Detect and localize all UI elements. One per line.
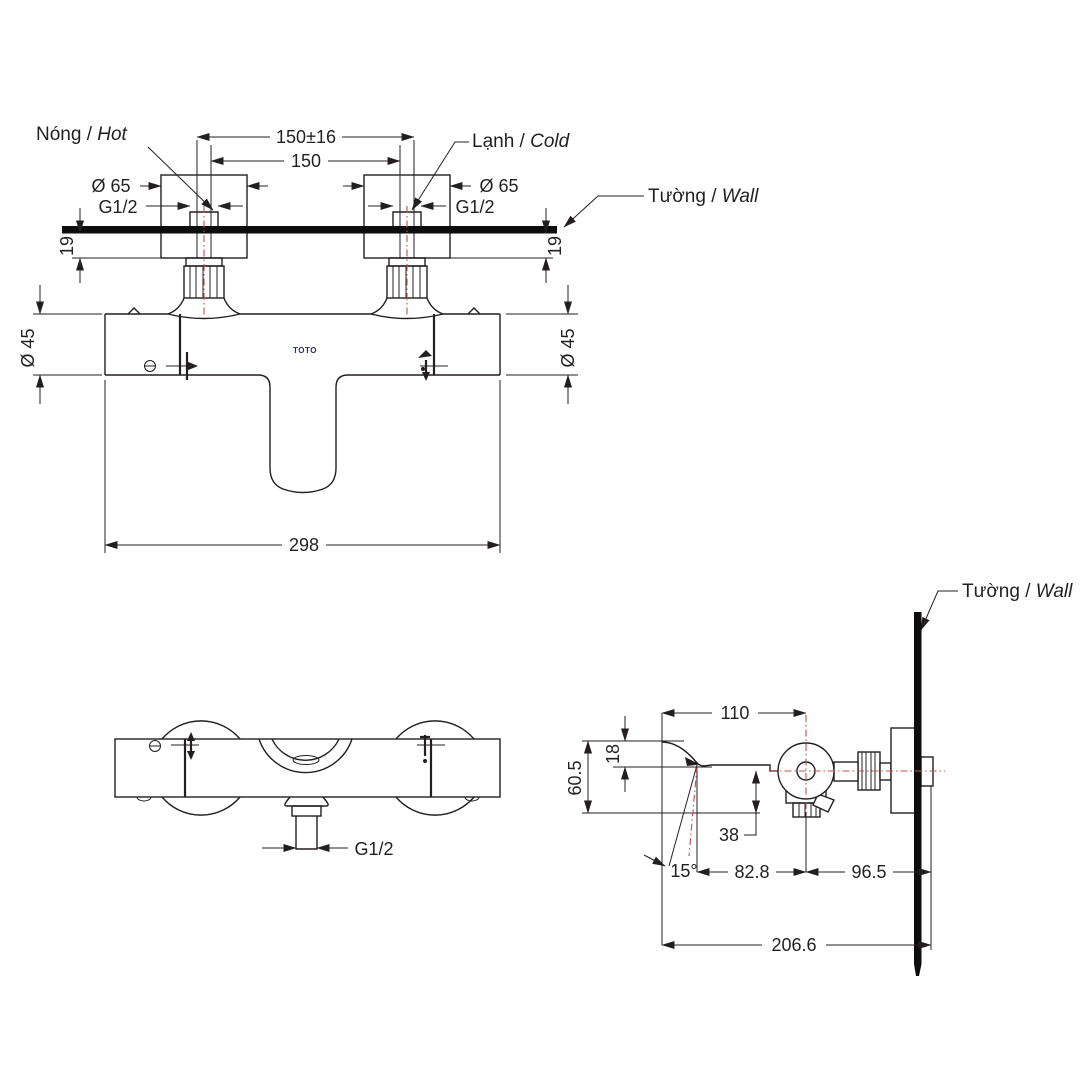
technical-drawing-page: 150±16 150 Ø 65 Ø 65 G1/2 G1/2 Nóng / Ho…	[0, 0, 1090, 1090]
top-view: G1/2	[115, 721, 500, 859]
dim-escutcheon-dia-left: Ø 65	[91, 176, 130, 196]
handle-right-bottom-arc	[396, 797, 474, 815]
dim-overall-depth: 206.6	[771, 935, 816, 955]
temperature-icon-top	[150, 732, 200, 760]
handle-right-top-arc	[396, 721, 474, 739]
dim-escutcheon-dia-right: Ø 65	[479, 176, 518, 196]
wall-label-side: Tường / Wall	[962, 581, 1073, 602]
wall-side-bar	[914, 612, 922, 964]
dim-body-dia-right: Ø 45	[558, 328, 578, 367]
wall-leader-front	[564, 196, 644, 227]
dim-tip-to-center: 82.8	[734, 862, 769, 882]
spout-inner-arc	[272, 739, 339, 760]
mixer-body-top	[115, 739, 500, 797]
front-view: 150±16 150 Ø 65 Ø 65 G1/2 G1/2 Nóng / Ho…	[18, 124, 759, 555]
brand-logo: TOTO	[293, 346, 317, 355]
dim-overall-width: 298	[289, 535, 319, 555]
dim-center-tolerance: 150±16	[276, 127, 336, 147]
side-view: Tường / Wall	[565, 581, 1073, 976]
dim-center-to-wall: 96.5	[851, 862, 886, 882]
dim-spout-angle: 15°	[670, 861, 697, 881]
hot-label: Nóng / Hot	[36, 124, 128, 145]
outlet-top-view	[285, 797, 328, 849]
handle-left-bottom-arc	[162, 797, 240, 815]
wall-section-bar	[62, 226, 557, 234]
wall-label-front: Tường / Wall	[648, 186, 759, 207]
hot-leader-line	[148, 147, 213, 210]
dim-wall-offset-right: 19	[545, 236, 565, 256]
dim-outlet-depth: 38	[719, 825, 739, 845]
dim-spout-drop: 18	[603, 744, 623, 764]
dim-thread-left: G1/2	[98, 197, 137, 217]
wall-leader-side	[921, 591, 958, 630]
mixer-body-front: TOTO	[105, 308, 500, 493]
dim-body-dia-left: Ø 45	[18, 328, 38, 367]
dim-thread-right: G1/2	[455, 197, 494, 217]
cold-label: Lạnh / Cold	[472, 131, 571, 152]
handle-left-top-arc	[162, 721, 240, 739]
mixer-dimension-drawing: 150±16 150 Ø 65 Ø 65 G1/2 G1/2 Nóng / Ho…	[0, 0, 1090, 1090]
dim-spout-reach: 110	[721, 703, 750, 723]
dim-center-nominal: 150	[291, 151, 321, 171]
dim-outlet-thread: G1/2	[354, 839, 393, 859]
dim-wall-offset-left: 19	[57, 236, 77, 256]
dim-overall-height: 60.5	[565, 760, 585, 795]
temperature-icon	[145, 352, 199, 380]
